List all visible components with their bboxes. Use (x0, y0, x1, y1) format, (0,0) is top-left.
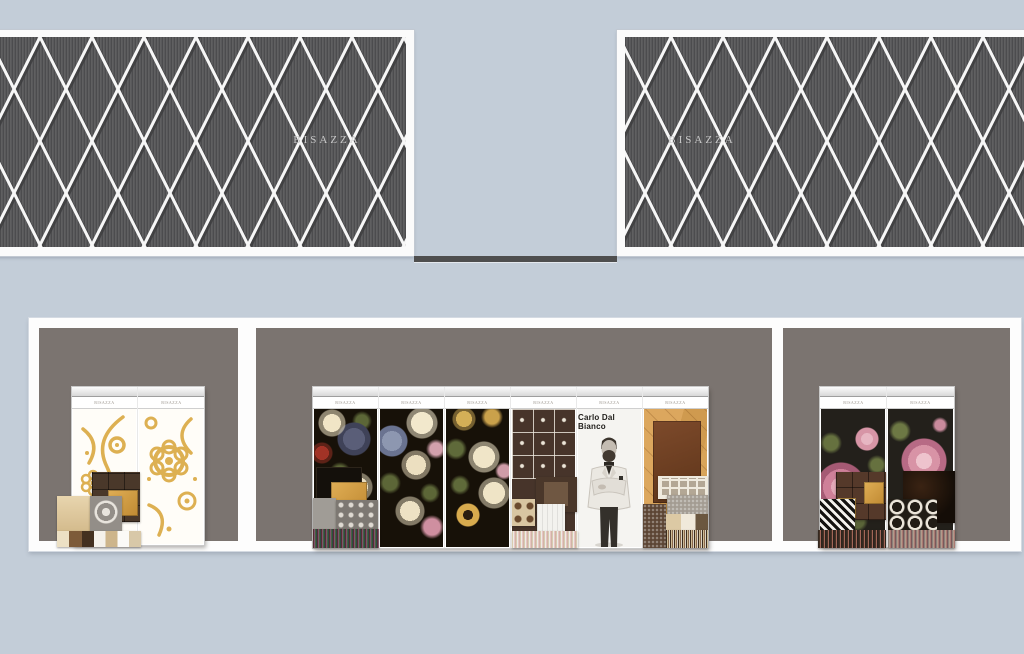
sample-stripe-row (57, 531, 141, 547)
panel-brand-label: BISAZZA (599, 400, 619, 405)
panel-label-band: BISAZZA (511, 397, 576, 409)
facade-sign-left: BISAZZA (293, 134, 360, 146)
sample-houndstooth-mosaic (820, 499, 855, 530)
facade-panel-left: BISAZZA (0, 30, 414, 256)
panel-brand-label: BISAZZA (665, 400, 685, 405)
display-panel: BISAZZA (445, 387, 510, 548)
sample-gray-damask-tile (90, 496, 122, 531)
panel-brand-label: BISAZZA (533, 400, 553, 405)
panel-brand-label: BISAZZA (335, 400, 355, 405)
designer-name: Carlo Dal Bianco (578, 409, 641, 431)
panel-rail (313, 387, 378, 397)
sample-mosaic-bust (667, 495, 708, 514)
sample-stripe-row (666, 514, 708, 530)
panel-rail (820, 387, 886, 397)
sample-dark-mosaic (643, 504, 666, 548)
gold-ornament-art-large (139, 409, 203, 544)
panel-brand-label: BISAZZA (843, 400, 863, 405)
panel-label-band: BISAZZA (379, 397, 444, 409)
elevation-stage: BISAZZA (0, 0, 1024, 654)
designer-portrait-figure (578, 431, 641, 547)
sample-beige-tile (57, 496, 91, 531)
sample-hexagon-mosaic (888, 499, 937, 530)
facade-field-left: BISAZZA (0, 37, 406, 247)
facade-panel-right: BISAZZA (617, 30, 1024, 256)
panel-rail (577, 387, 642, 397)
sample-gold-inset (864, 482, 884, 504)
panel-label-band: BISAZZA (445, 397, 510, 409)
panel-label-band: BISAZZA (577, 397, 642, 409)
panel-brand-label: BISAZZA (94, 400, 114, 405)
panel-label-band: BISAZZA (313, 397, 378, 409)
white-ornament-grid (512, 409, 575, 479)
sample-stripe-row (666, 530, 708, 548)
facade-sign-right: BISAZZA (668, 134, 735, 146)
panel-rail (72, 387, 137, 397)
panel-brand-label: BISAZZA (910, 400, 930, 405)
sample-scroll-ornament (512, 499, 535, 526)
panel-brand-label: BISAZZA (161, 400, 181, 405)
panel-brand-label: BISAZZA (467, 400, 487, 405)
dark-floral-art-3 (446, 409, 509, 547)
sample-stripe-row (313, 529, 379, 548)
panel-label-band: BISAZZA (138, 397, 204, 409)
gold-rosette-motif (139, 409, 203, 544)
facade-connector-bar (414, 256, 617, 262)
diamond-lattice-right: BISAZZA (625, 37, 1024, 247)
display-panel: BISAZZA (379, 387, 444, 548)
panel-rail (511, 387, 576, 397)
sample-brown-inset (544, 482, 568, 506)
facade-field-right: BISAZZA (625, 37, 1024, 247)
sample-white-striped (537, 504, 565, 533)
sample-stripe-row (888, 530, 955, 548)
panel-label-band: BISAZZA (887, 397, 954, 409)
panel-rail (445, 387, 510, 397)
panel-rail (643, 387, 708, 397)
dark-floral-art-2 (380, 409, 443, 547)
sample-gray-tile (313, 498, 336, 529)
panel-brand-label: BISAZZA (401, 400, 421, 405)
panel-rail (887, 387, 954, 397)
panel-rail (379, 387, 444, 397)
panel-label-band: BISAZZA (643, 397, 708, 409)
panel-label-band: BISAZZA (820, 397, 886, 409)
designer-panel: BISAZZA Carlo Dal Bianco (577, 387, 642, 548)
sample-stripe-row (512, 531, 578, 548)
display-panel: BISAZZA (138, 387, 204, 545)
panel-label-band: BISAZZA (72, 397, 137, 409)
sample-dotted-tiles (336, 500, 378, 529)
diamond-lattice-left: BISAZZA (0, 37, 406, 247)
sample-stripe-row (818, 530, 886, 548)
designer-portrait-art: Carlo Dal Bianco (578, 409, 641, 547)
panel-rail (138, 387, 204, 397)
